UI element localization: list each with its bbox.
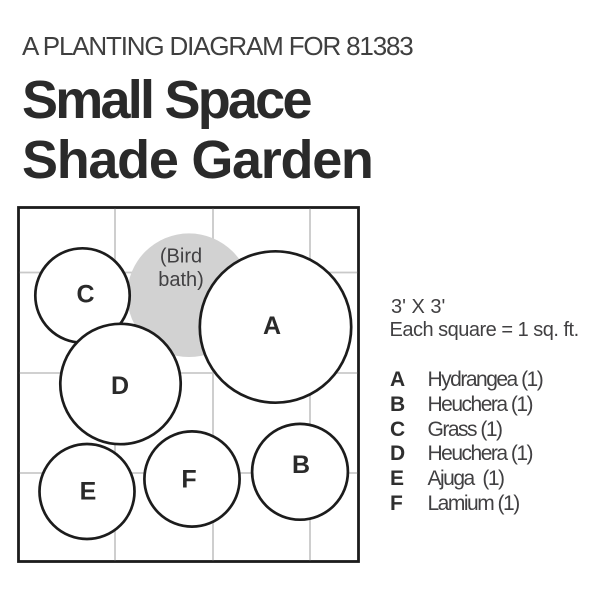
svg-text:D: D xyxy=(111,372,129,400)
svg-text:C: C xyxy=(76,281,94,309)
svg-text:bath): bath) xyxy=(158,269,204,291)
svg-text:E: E xyxy=(80,478,97,506)
svg-text:A: A xyxy=(263,312,281,340)
svg-text:F: F xyxy=(181,466,196,494)
svg-text:(Bird: (Bird xyxy=(160,246,202,268)
svg-text:B: B xyxy=(292,451,310,479)
